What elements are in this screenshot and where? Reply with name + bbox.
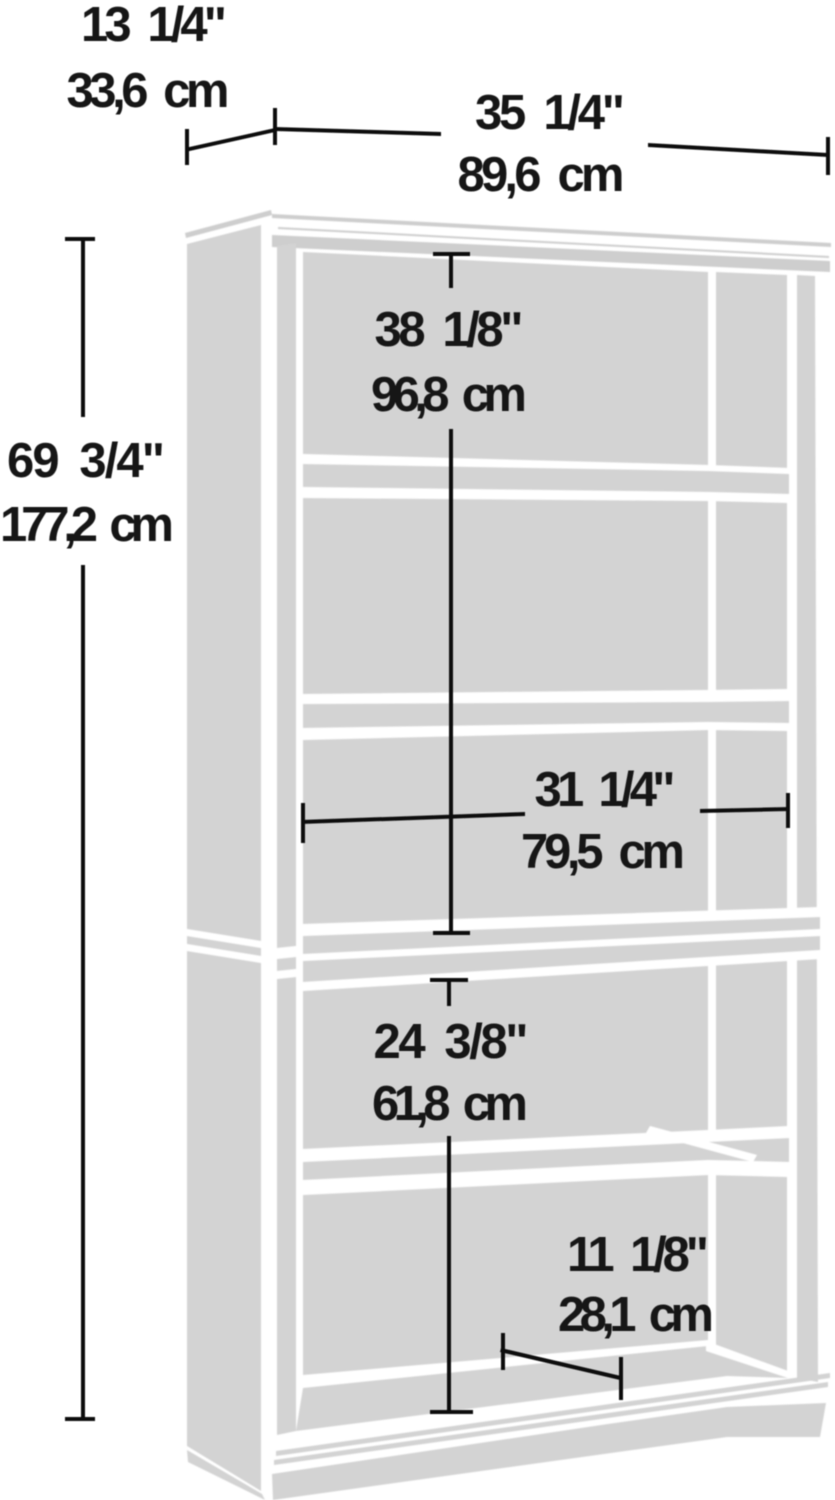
svg-text:69 3/4": 69 3/4" xyxy=(7,434,165,488)
svg-text:79,5 cm: 79,5 cm xyxy=(521,825,685,879)
svg-text:28,1 cm: 28,1 cm xyxy=(558,1288,714,1342)
svg-text:96,8 cm: 96,8 cm xyxy=(371,368,527,422)
svg-text:61,8 cm: 61,8 cm xyxy=(372,1077,528,1131)
svg-text:177,2 cm: 177,2 cm xyxy=(0,498,174,552)
svg-text:38 1/8": 38 1/8" xyxy=(375,303,524,357)
svg-text:11 1/8": 11 1/8" xyxy=(567,1228,709,1282)
svg-text:31 1/4": 31 1/4" xyxy=(535,763,676,817)
svg-text:24 3/8": 24 3/8" xyxy=(374,1015,529,1069)
svg-text:89,6 cm: 89,6 cm xyxy=(458,148,625,202)
svg-text:33,6 cm: 33,6 cm xyxy=(67,64,230,118)
svg-text:35 1/4": 35 1/4" xyxy=(475,86,625,140)
svg-text:13 1/4": 13 1/4" xyxy=(81,0,227,52)
